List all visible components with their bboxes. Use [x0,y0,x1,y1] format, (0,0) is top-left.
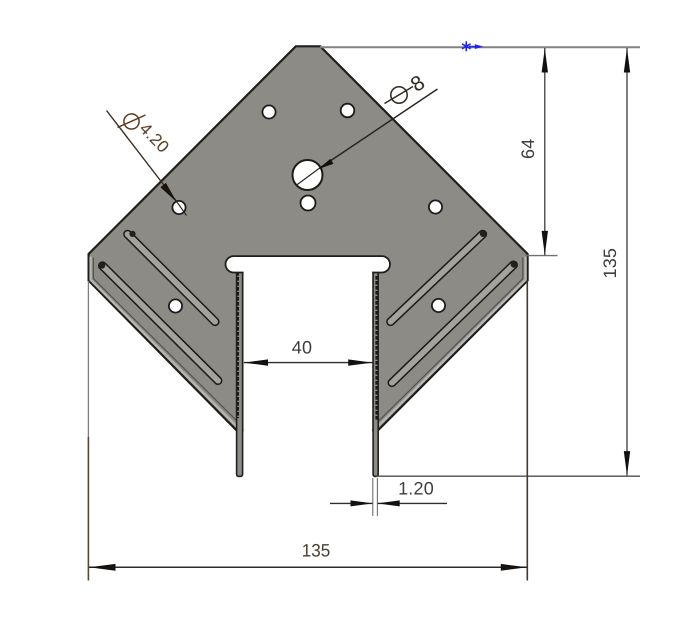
svg-text:135: 135 [302,541,331,561]
svg-text:1.20: 1.20 [398,479,434,499]
svg-text:64: 64 [518,139,538,159]
svg-text:40: 40 [292,338,312,358]
svg-text:135: 135 [600,248,620,279]
